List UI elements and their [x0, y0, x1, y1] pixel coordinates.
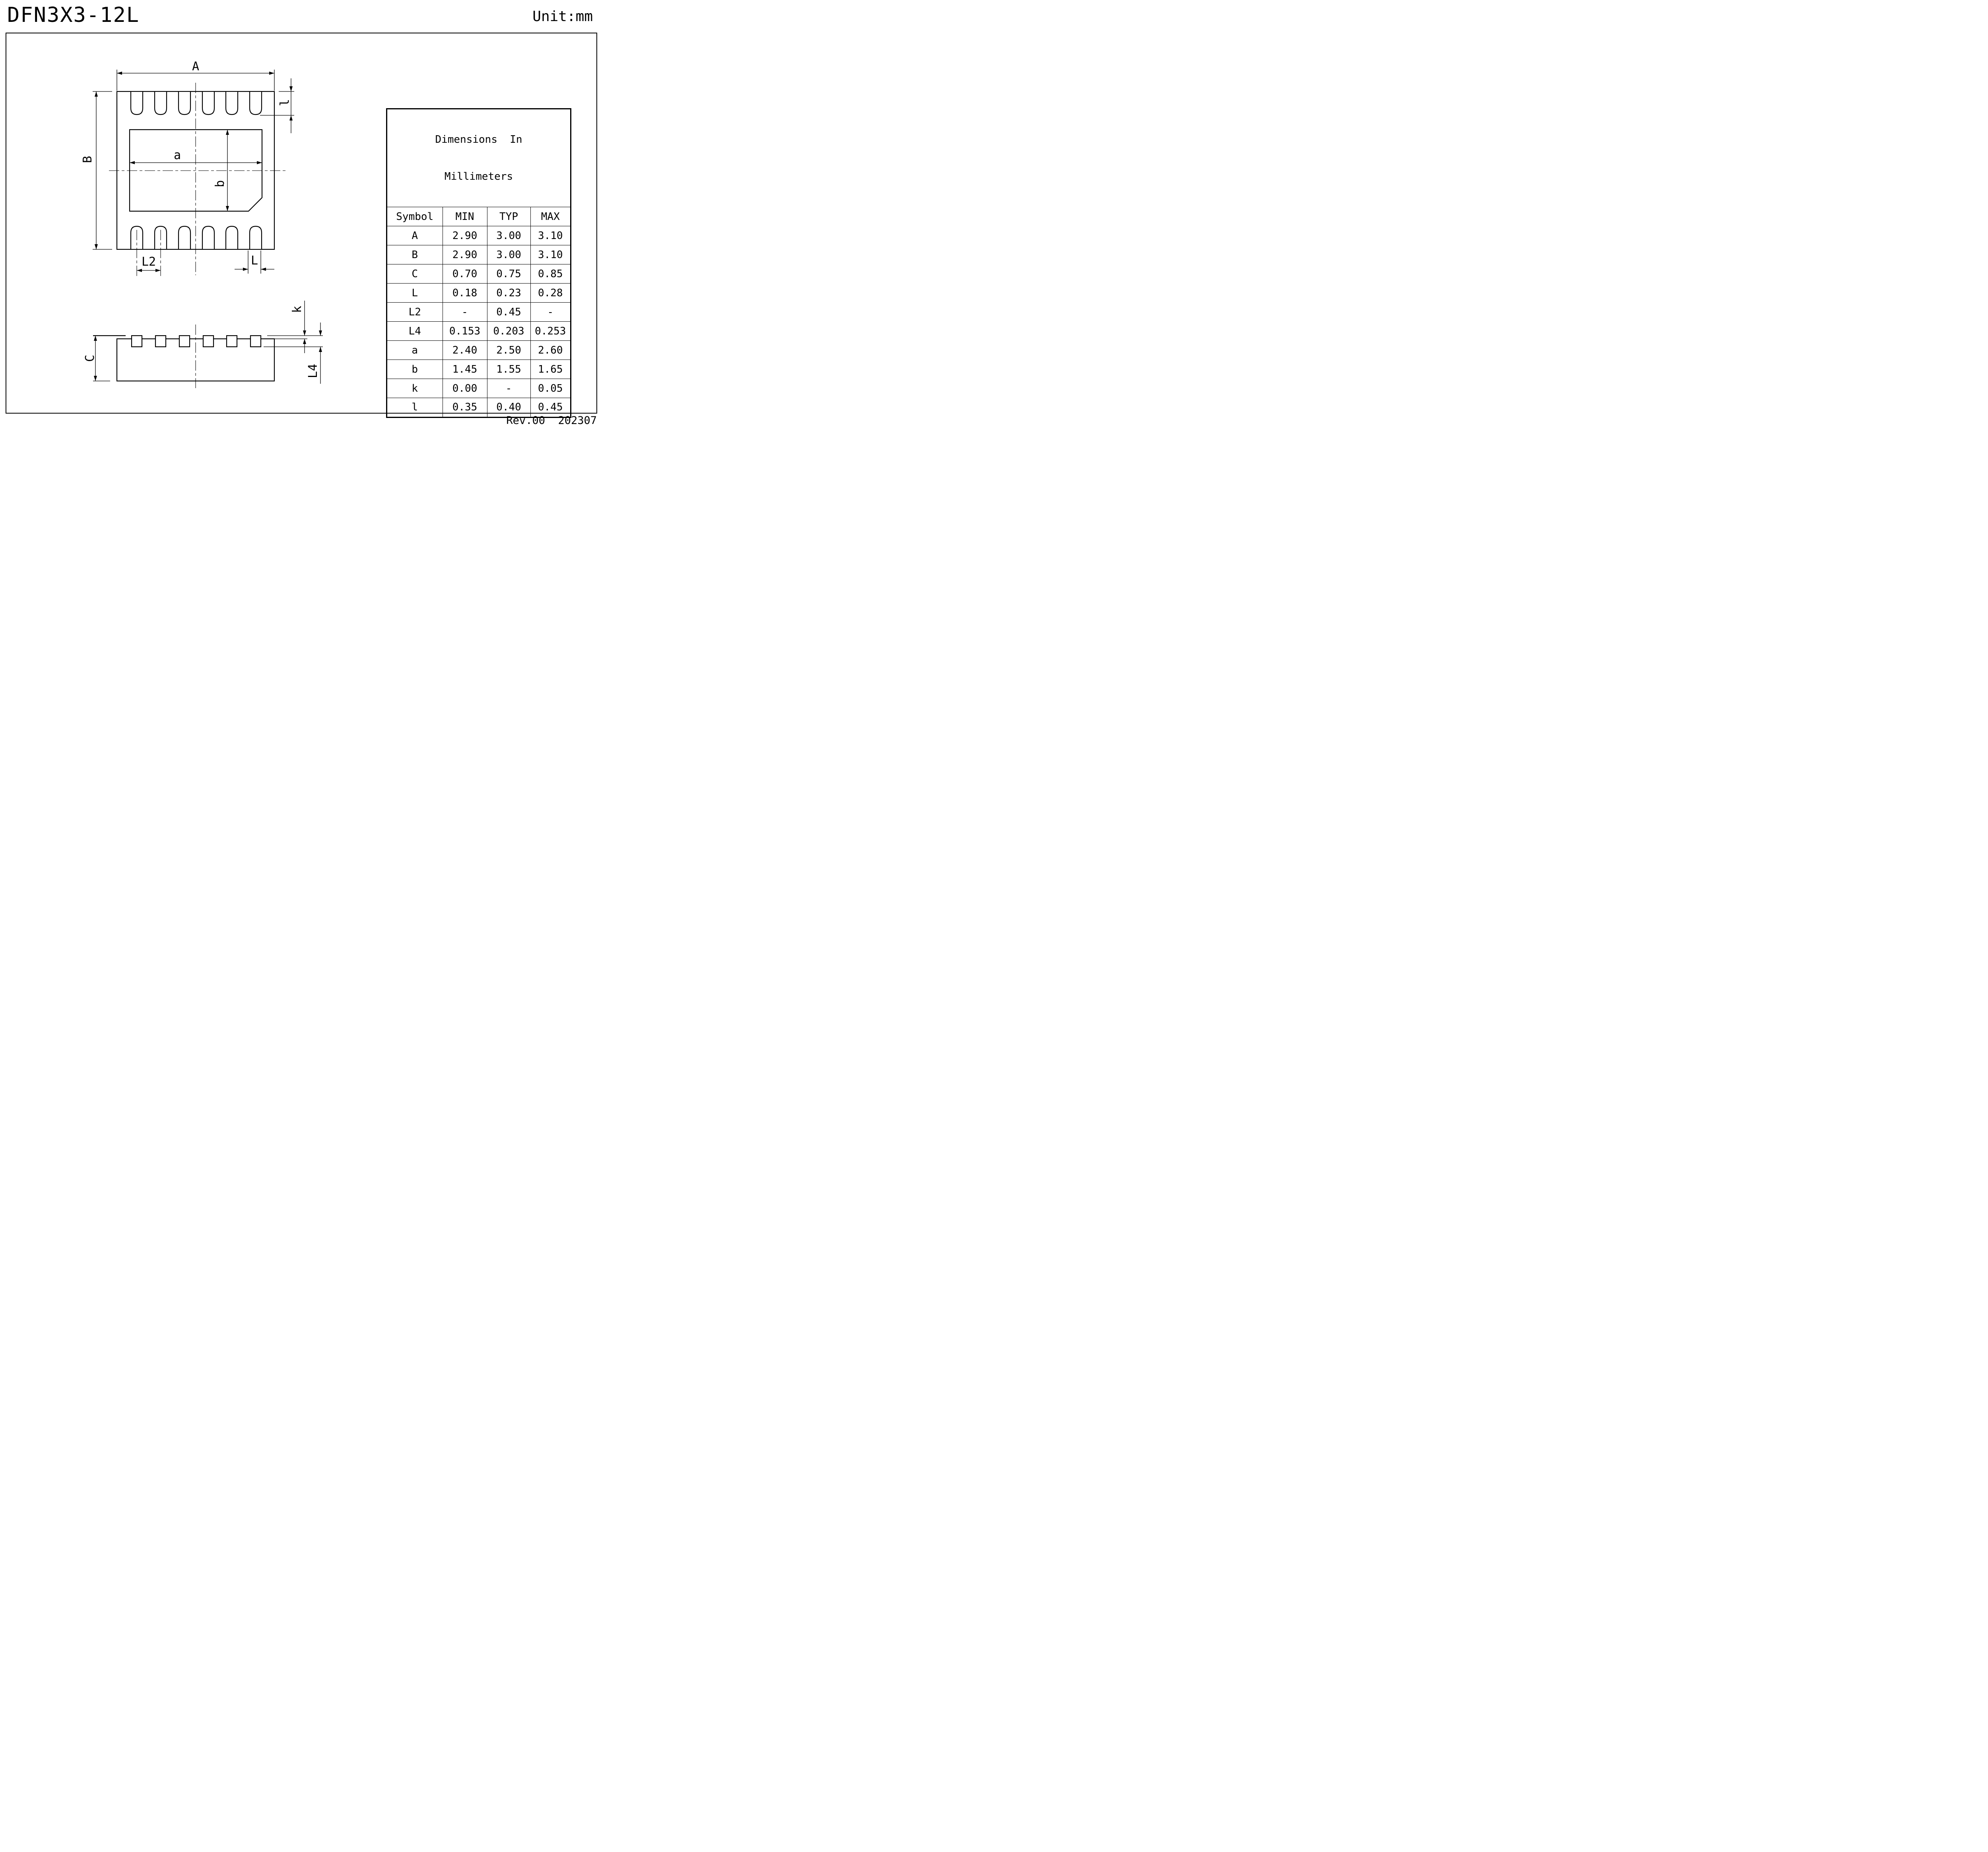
top-view: A B a b	[81, 60, 294, 277]
table-cell: 1.55	[487, 360, 530, 379]
column-header-symbol: Symbol	[387, 207, 443, 226]
table-row: A 2.90 3.00 3.10	[387, 226, 571, 245]
table-cell: 0.75	[487, 264, 530, 284]
table-row: C 0.70 0.75 0.85	[387, 264, 571, 284]
dim-C: C	[83, 336, 97, 381]
table-cell: 0.45	[487, 303, 530, 322]
table-cell: -	[443, 303, 487, 322]
dim-L4-label: L4	[306, 364, 320, 378]
table-cell: 2.60	[530, 341, 571, 360]
table-row: b 1.45 1.55 1.65	[387, 360, 571, 379]
dim-b-label: b	[213, 180, 227, 187]
table-cell: 0.253	[530, 322, 571, 341]
dim-k-label: k	[290, 306, 304, 313]
column-header-typ: TYP	[487, 207, 530, 226]
table-cell: 0.05	[530, 379, 571, 398]
dim-B-label: B	[81, 156, 95, 163]
table-cell: -	[487, 379, 530, 398]
table-cell: 3.00	[487, 245, 530, 264]
dim-k: k	[290, 301, 306, 353]
dim-L-label: L	[251, 254, 258, 268]
table-cell: 0.45	[530, 398, 571, 417]
dim-L4: L4	[306, 323, 322, 384]
table-cell: A	[387, 226, 443, 245]
table-cell: 2.90	[443, 245, 487, 264]
table-title-cell: Dimensions In Millimeters	[387, 109, 571, 207]
table-cell: L4	[387, 322, 443, 341]
table-cell: 2.90	[443, 226, 487, 245]
table-cell: C	[387, 264, 443, 284]
table-row: k 0.00 - 0.05	[387, 379, 571, 398]
table-cell: 3.10	[530, 226, 571, 245]
table-cell: 0.18	[443, 284, 487, 303]
dim-a-label: a	[174, 148, 181, 162]
table-cell: b	[387, 360, 443, 379]
table-cell: 0.85	[530, 264, 571, 284]
table-row: L 0.18 0.23 0.28	[387, 284, 571, 303]
side-view: C k L4	[83, 301, 323, 388]
dim-L2-label: L2	[142, 255, 156, 269]
table-cell: 0.70	[443, 264, 487, 284]
table-cell: 0.00	[443, 379, 487, 398]
dim-A-label: A	[192, 60, 199, 74]
table-cell: 0.203	[487, 322, 530, 341]
table-row: L2 - 0.45 -	[387, 303, 571, 322]
table-cell: 0.153	[443, 322, 487, 341]
table-cell: l	[387, 398, 443, 417]
table-row: B 2.90 3.00 3.10	[387, 245, 571, 264]
table-cell: 2.50	[487, 341, 530, 360]
dim-C-label: C	[83, 355, 97, 362]
column-header-min: MIN	[443, 207, 487, 226]
table-cell: L	[387, 284, 443, 303]
dimensions-table: Dimensions In Millimeters Symbol MIN TYP…	[386, 109, 570, 349]
table-cell: a	[387, 341, 443, 360]
table-title-line1: Dimensions In	[387, 133, 570, 146]
table-cell: 0.28	[530, 284, 571, 303]
table-cell: L2	[387, 303, 443, 322]
table-cell: 3.00	[487, 226, 530, 245]
table-cell: 0.35	[443, 398, 487, 417]
datasheet-page: DFN3X3-12L Unit:mm Rev.00 202307	[0, 0, 601, 463]
table-cell: k	[387, 379, 443, 398]
table-cell: 2.40	[443, 341, 487, 360]
table-row: l 0.35 0.40 0.45	[387, 398, 571, 417]
dim-B: B	[81, 91, 112, 249]
table-cell: 0.23	[487, 284, 530, 303]
table-cell: 1.45	[443, 360, 487, 379]
dim-L: L	[235, 251, 274, 274]
table-cell: -	[530, 303, 571, 322]
column-header-max: MAX	[530, 207, 571, 226]
table-title-line2: Millimeters	[387, 170, 570, 183]
table-cell: 1.65	[530, 360, 571, 379]
table-header-row: Symbol MIN TYP MAX	[387, 207, 571, 226]
table-row: a 2.40 2.50 2.60	[387, 341, 571, 360]
dim-l-small-label: l	[278, 99, 292, 106]
table-title-row: Dimensions In Millimeters	[387, 109, 571, 207]
table-cell: 3.10	[530, 245, 571, 264]
table-cell: 0.40	[487, 398, 530, 417]
table-cell: B	[387, 245, 443, 264]
table-row: L4 0.153 0.203 0.253	[387, 322, 571, 341]
